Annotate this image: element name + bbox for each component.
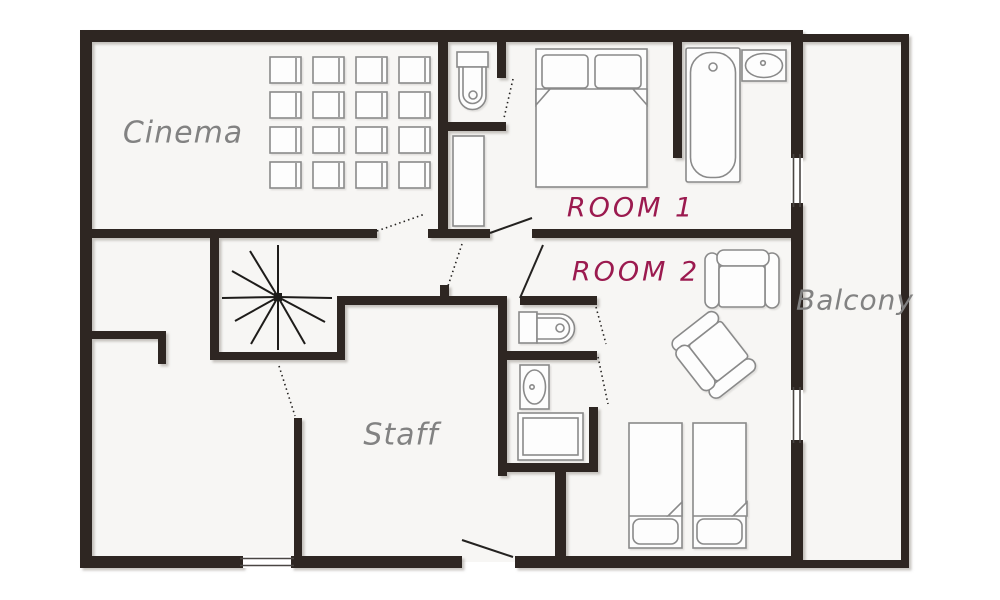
wall-segment xyxy=(555,472,566,556)
shower-tray xyxy=(518,413,583,460)
washbasin xyxy=(520,365,549,409)
toilet-icon xyxy=(457,52,488,109)
window xyxy=(791,154,803,207)
wall-segment xyxy=(520,296,597,305)
wall-segment xyxy=(515,556,803,568)
wall-segment xyxy=(532,229,791,238)
wall-segment xyxy=(498,296,507,476)
single-bed xyxy=(629,423,682,548)
room-label-cinema: Cinema xyxy=(123,116,243,151)
stair-newel-post xyxy=(274,293,282,301)
wall-segment xyxy=(791,30,803,158)
wall-segment xyxy=(438,122,506,131)
armchair xyxy=(705,250,779,308)
room-label-room2: ROOM 2 xyxy=(572,257,700,288)
wall-segment xyxy=(428,229,490,238)
wall-segment xyxy=(673,42,682,158)
wall-segment xyxy=(791,440,803,568)
wall-segment xyxy=(337,296,500,305)
wall-segment xyxy=(497,42,506,78)
wall-segment xyxy=(80,556,243,568)
toilet-icon xyxy=(519,312,575,343)
wall-segment xyxy=(507,463,598,472)
wall-segment xyxy=(92,331,163,339)
wall-segment xyxy=(80,30,92,568)
window xyxy=(240,556,294,568)
wall-segment xyxy=(294,418,302,556)
room-label-balcony: Balcony xyxy=(796,284,914,317)
wardrobe xyxy=(453,136,484,226)
wall-segment xyxy=(158,331,166,364)
wall-segment xyxy=(92,229,377,238)
wall-segment xyxy=(589,407,598,472)
balcony-wall xyxy=(803,34,909,42)
wall-segment xyxy=(210,238,219,360)
double-bed xyxy=(536,49,647,187)
room-label-room1: ROOM 1 xyxy=(567,193,695,224)
room-label-staff: Staff xyxy=(363,418,438,453)
floor-plan: Cinema ROOM 1 ROOM 2 Staff Balcony xyxy=(0,0,1000,600)
wall-segment xyxy=(507,351,597,360)
washbasin xyxy=(742,50,786,81)
wall-segment xyxy=(337,296,345,360)
wall-segment xyxy=(438,42,448,229)
wall-segment xyxy=(80,30,803,42)
wall-segment xyxy=(291,556,462,568)
wall-segment xyxy=(440,285,449,297)
bathtub xyxy=(686,48,740,182)
balcony-wall xyxy=(803,560,909,568)
window xyxy=(791,387,803,443)
wall-segment xyxy=(210,352,345,360)
single-bed xyxy=(693,423,747,548)
